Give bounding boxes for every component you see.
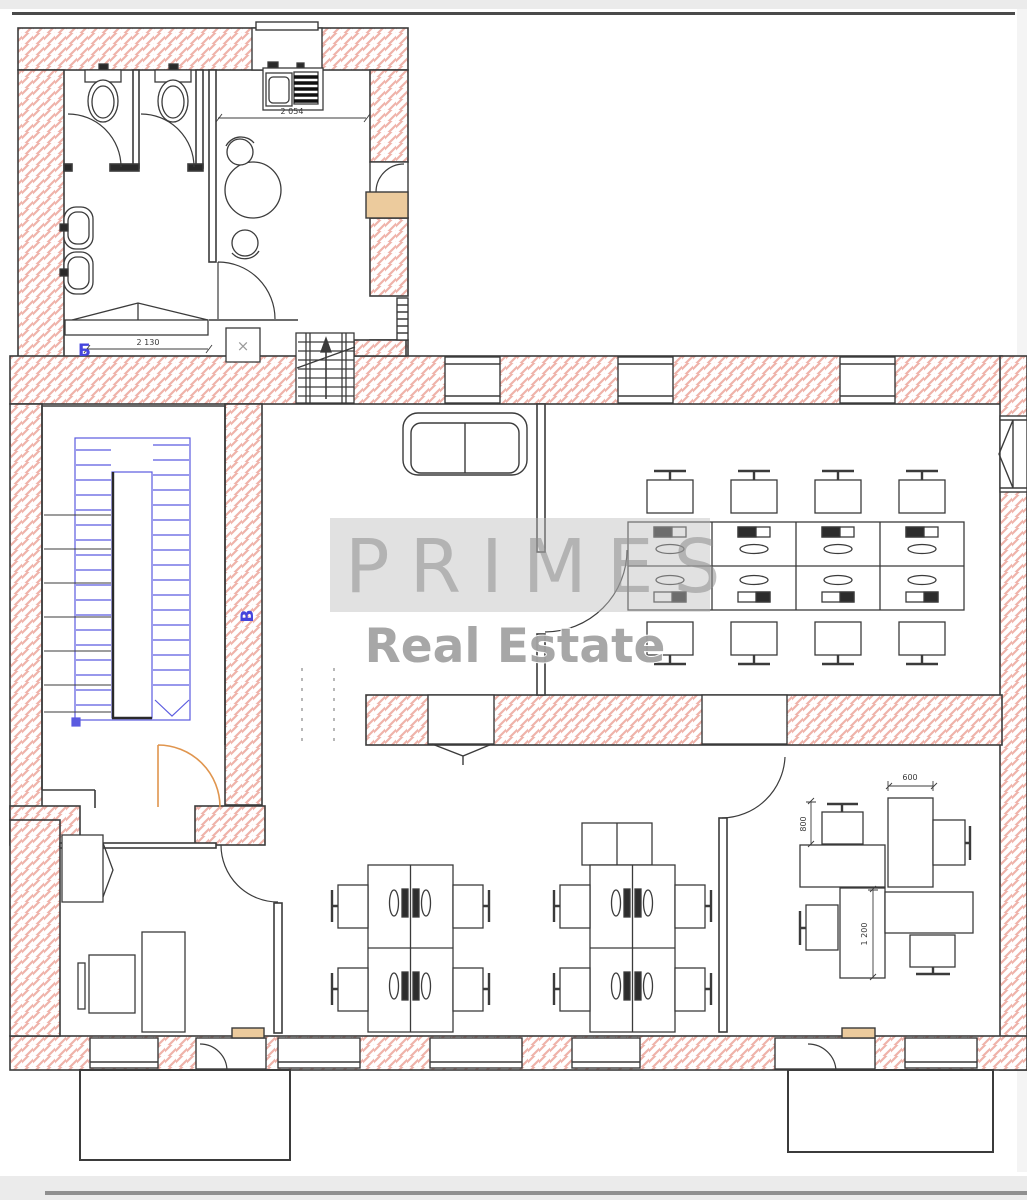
wall-outer-left-upper [10, 404, 42, 820]
sill-wing [366, 192, 408, 218]
wall-stairwell-right [225, 404, 262, 805]
sofa [403, 413, 527, 475]
page-top-rule [12, 12, 1015, 15]
vanity-counter [65, 320, 208, 335]
opening-middle-right [702, 695, 787, 744]
toilet-icon [85, 64, 121, 122]
wall-wing-top [18, 28, 408, 70]
dish-drainer-icon [294, 72, 318, 104]
window-top-1 [445, 357, 500, 403]
window-bottom-1 [90, 1038, 158, 1068]
wall-wing-left [18, 70, 64, 365]
opening-bottom-door-left [196, 1038, 266, 1069]
sill-bottom-left [232, 1028, 264, 1038]
dim-desk-600: 600 [902, 773, 917, 782]
sink-icon [60, 207, 93, 249]
window-bottom-3 [430, 1038, 522, 1068]
window-top-2 [618, 357, 673, 403]
window-top-3 [840, 357, 895, 403]
dim-desk-800: 800 [799, 816, 808, 831]
wall-wc-kitchen [209, 70, 216, 262]
wc-stall-partition-2 [196, 70, 203, 168]
wall-stub-3 [188, 164, 203, 171]
terrace-right [788, 1070, 993, 1152]
private-office-right-wall [274, 903, 282, 1033]
wc-stall-partition-1 [133, 70, 139, 168]
window-bottom-4 [572, 1038, 640, 1068]
opening-middle-door [428, 695, 494, 744]
watermark-subtitle: Real Estate [365, 619, 666, 674]
wall-outer-left-lower [10, 820, 60, 1036]
opening-bottom-door-right [775, 1038, 875, 1069]
sill-bottom-right [842, 1028, 875, 1038]
wardrobe [62, 835, 103, 902]
wall-stub-1 [64, 164, 72, 171]
watermark-brand: PRIMES [345, 524, 740, 610]
window-bottom-5 [905, 1038, 977, 1068]
floor-plan-canvas: × 2 130 Б 2 054 [0, 0, 1027, 1200]
wall-stub-2 [110, 164, 139, 171]
page-bottom-rule [45, 1191, 1027, 1195]
shaft-mark: × [237, 337, 250, 355]
niche-kitchen [252, 28, 322, 70]
stair-start-dot [72, 718, 80, 726]
desk [89, 955, 135, 1013]
chair-icon [78, 963, 85, 1009]
entry-stairs [296, 333, 355, 403]
wall-wing-right-mid [370, 218, 408, 296]
section-label-b: Б [78, 341, 91, 361]
dim-kitchen-width: 2 054 [281, 107, 304, 116]
radiator-icon [397, 298, 408, 340]
wall-wing-right-upper [370, 70, 408, 162]
window-kitchen-top [256, 22, 318, 30]
section-label-v: В [238, 610, 258, 623]
tall-cabinet [142, 932, 185, 1032]
floor-plan-page: { "plan": { "kind": "office-floor-plan",… [0, 0, 1027, 1200]
wall-office-stub [195, 806, 265, 845]
toilet-icon [155, 64, 191, 122]
kitchen-sink-icon [266, 73, 292, 106]
sink-icon [60, 252, 93, 294]
page-bottom-band [0, 1176, 1027, 1200]
page-top-band [0, 0, 1027, 9]
dim-wc-width: 2 130 [137, 338, 160, 347]
bottom-right-partition [719, 818, 727, 1032]
wall-stair-stub [354, 340, 406, 356]
window-right-marker [999, 416, 1027, 492]
terrace-left [80, 1070, 290, 1160]
round-table [225, 162, 281, 218]
window-bottom-2 [278, 1038, 360, 1068]
dim-desk-1200: 1 200 [860, 923, 869, 946]
